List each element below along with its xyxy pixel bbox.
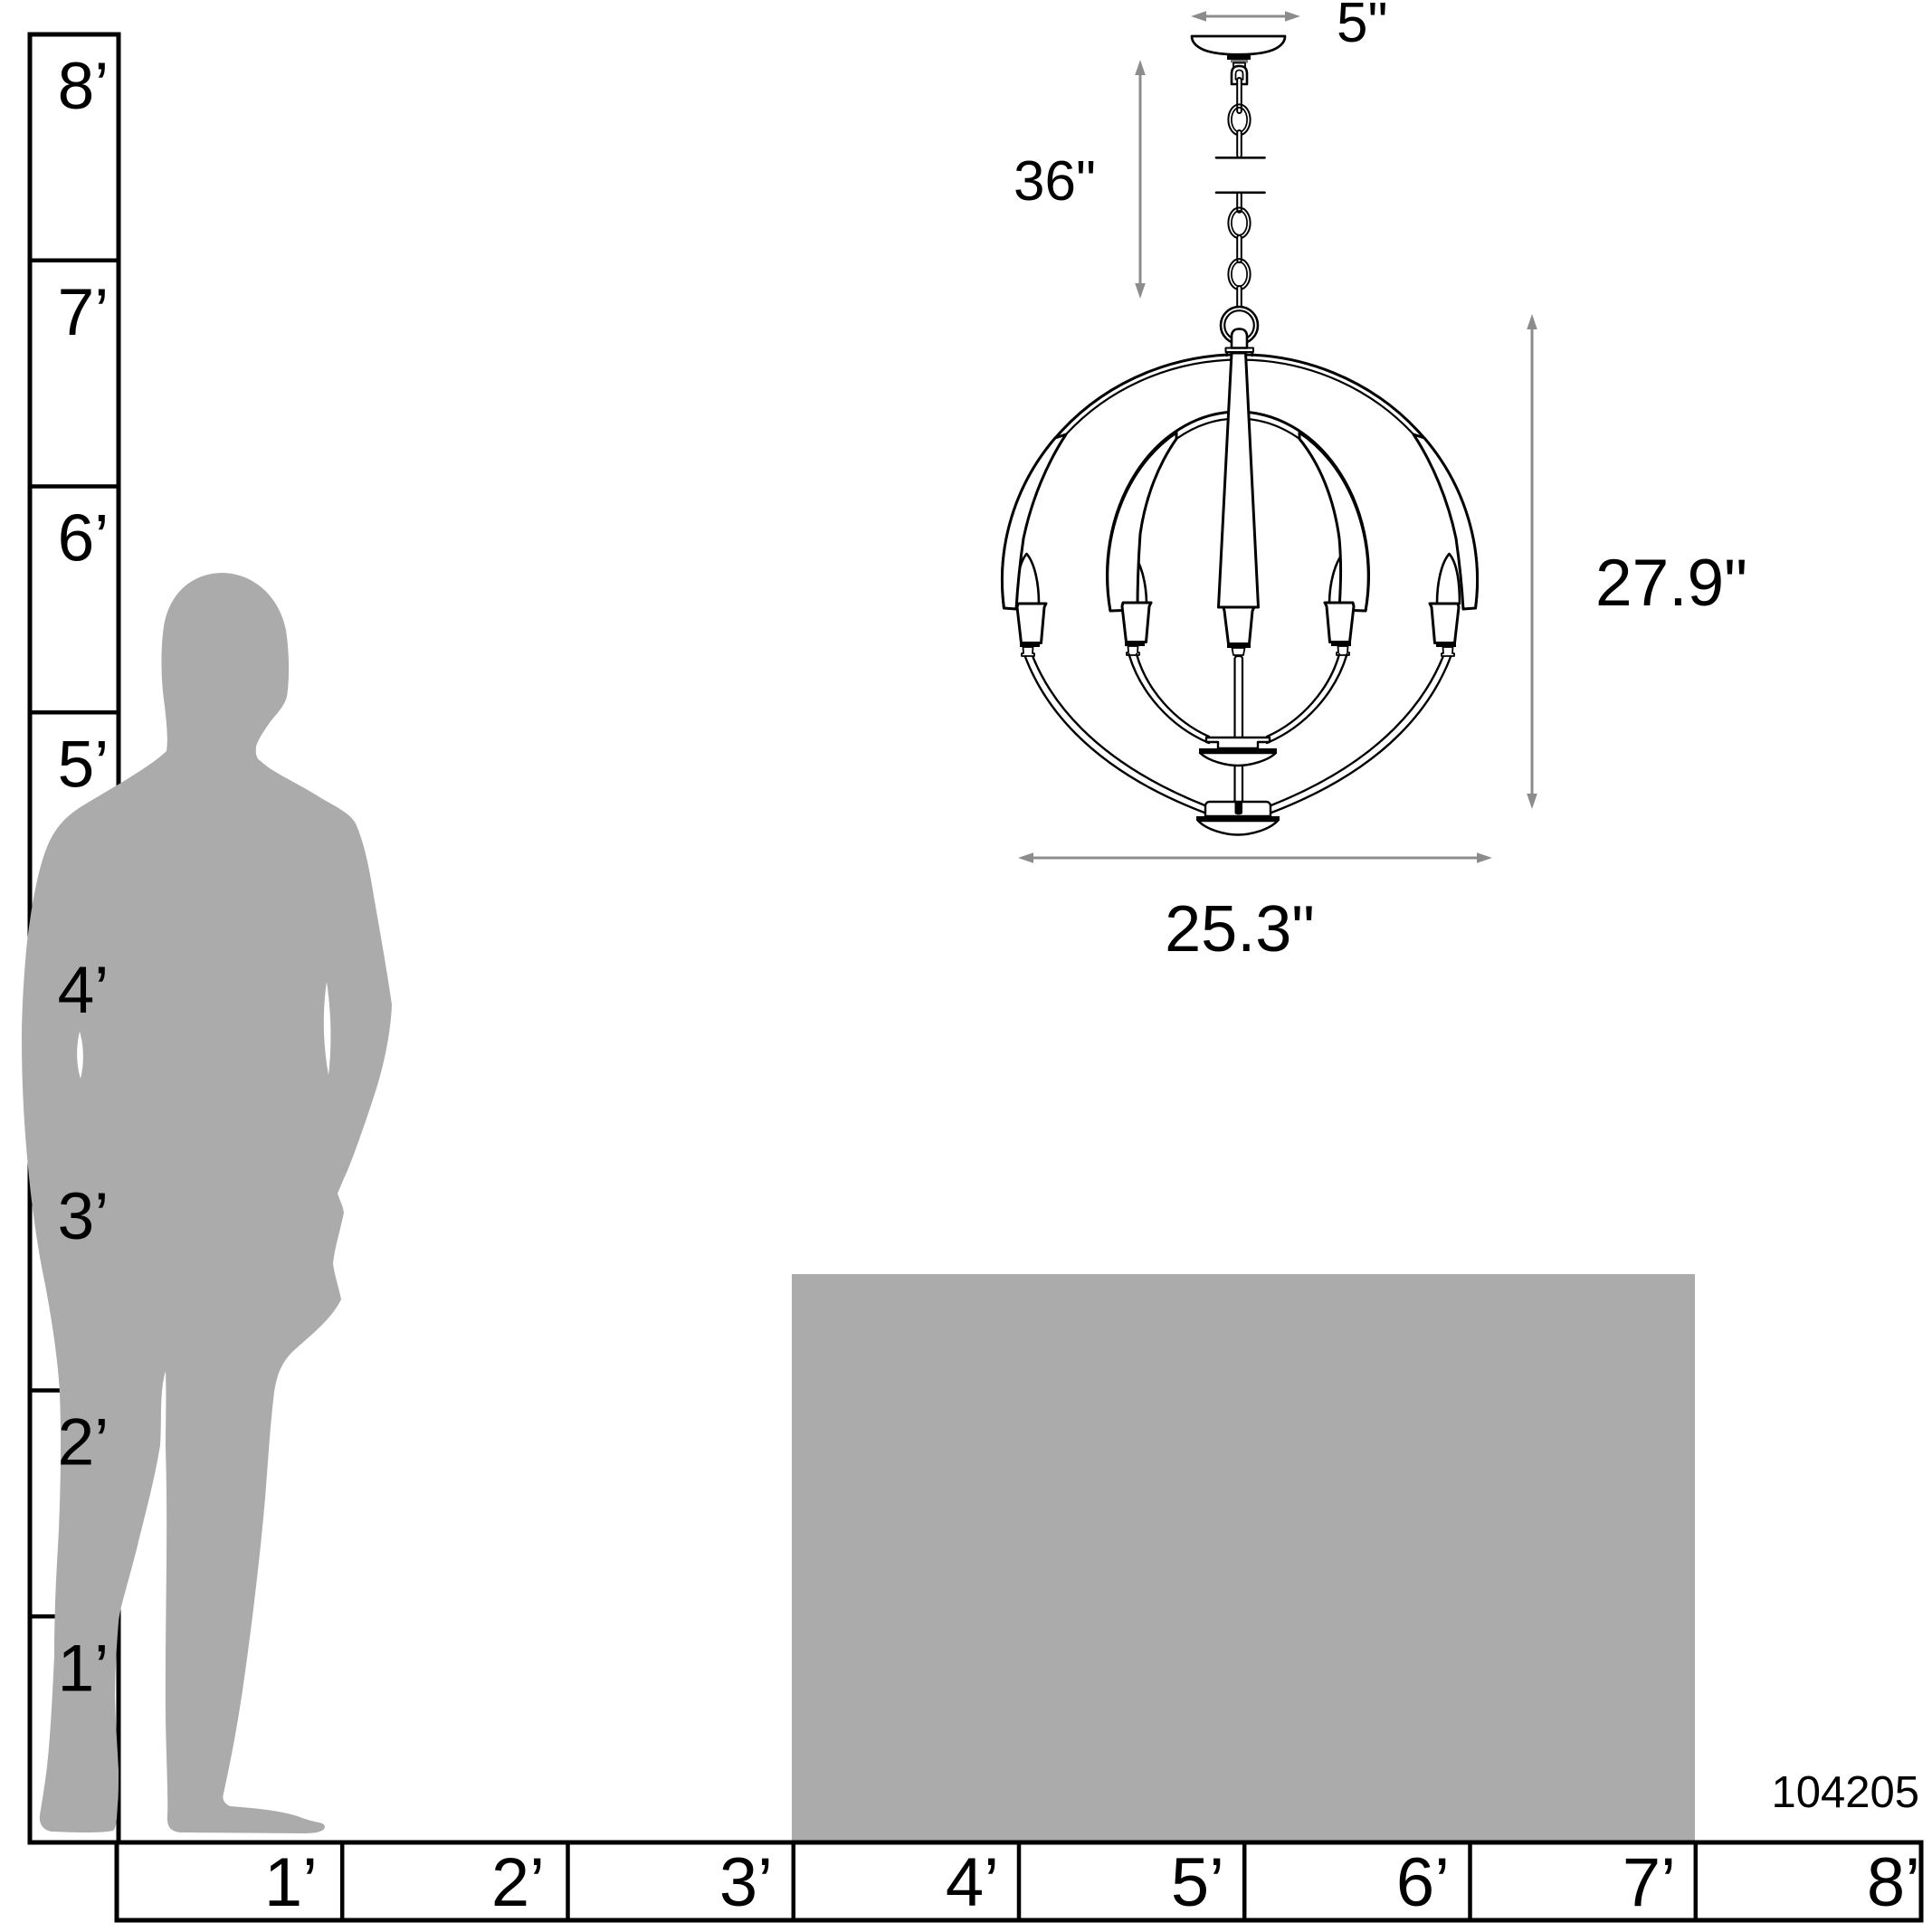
svg-text:6’: 6’ xyxy=(1396,1844,1450,1921)
svg-text:8’: 8’ xyxy=(1867,1844,1920,1921)
svg-text:3’: 3’ xyxy=(58,1180,109,1253)
svg-text:2’: 2’ xyxy=(58,1406,109,1480)
svg-text:1’: 1’ xyxy=(264,1844,318,1921)
svg-text:6’: 6’ xyxy=(58,502,109,576)
svg-text:4’: 4’ xyxy=(58,954,109,1027)
svg-text:4’: 4’ xyxy=(946,1844,999,1921)
svg-text:36": 36" xyxy=(1014,150,1096,213)
svg-text:1’: 1’ xyxy=(58,1632,109,1705)
svg-text:5’: 5’ xyxy=(1171,1844,1224,1921)
svg-text:8’: 8’ xyxy=(58,50,109,123)
svg-text:25.3": 25.3" xyxy=(1165,893,1315,966)
svg-text:104205: 104205 xyxy=(1771,1768,1919,1817)
svg-text:27.9": 27.9" xyxy=(1595,547,1747,620)
svg-text:3’: 3’ xyxy=(719,1844,773,1921)
svg-text:7’: 7’ xyxy=(1623,1844,1676,1921)
svg-text:5": 5" xyxy=(1337,0,1388,54)
svg-text:5’: 5’ xyxy=(58,728,109,801)
svg-text:7’: 7’ xyxy=(58,276,109,349)
svg-text:2’: 2’ xyxy=(491,1844,545,1921)
